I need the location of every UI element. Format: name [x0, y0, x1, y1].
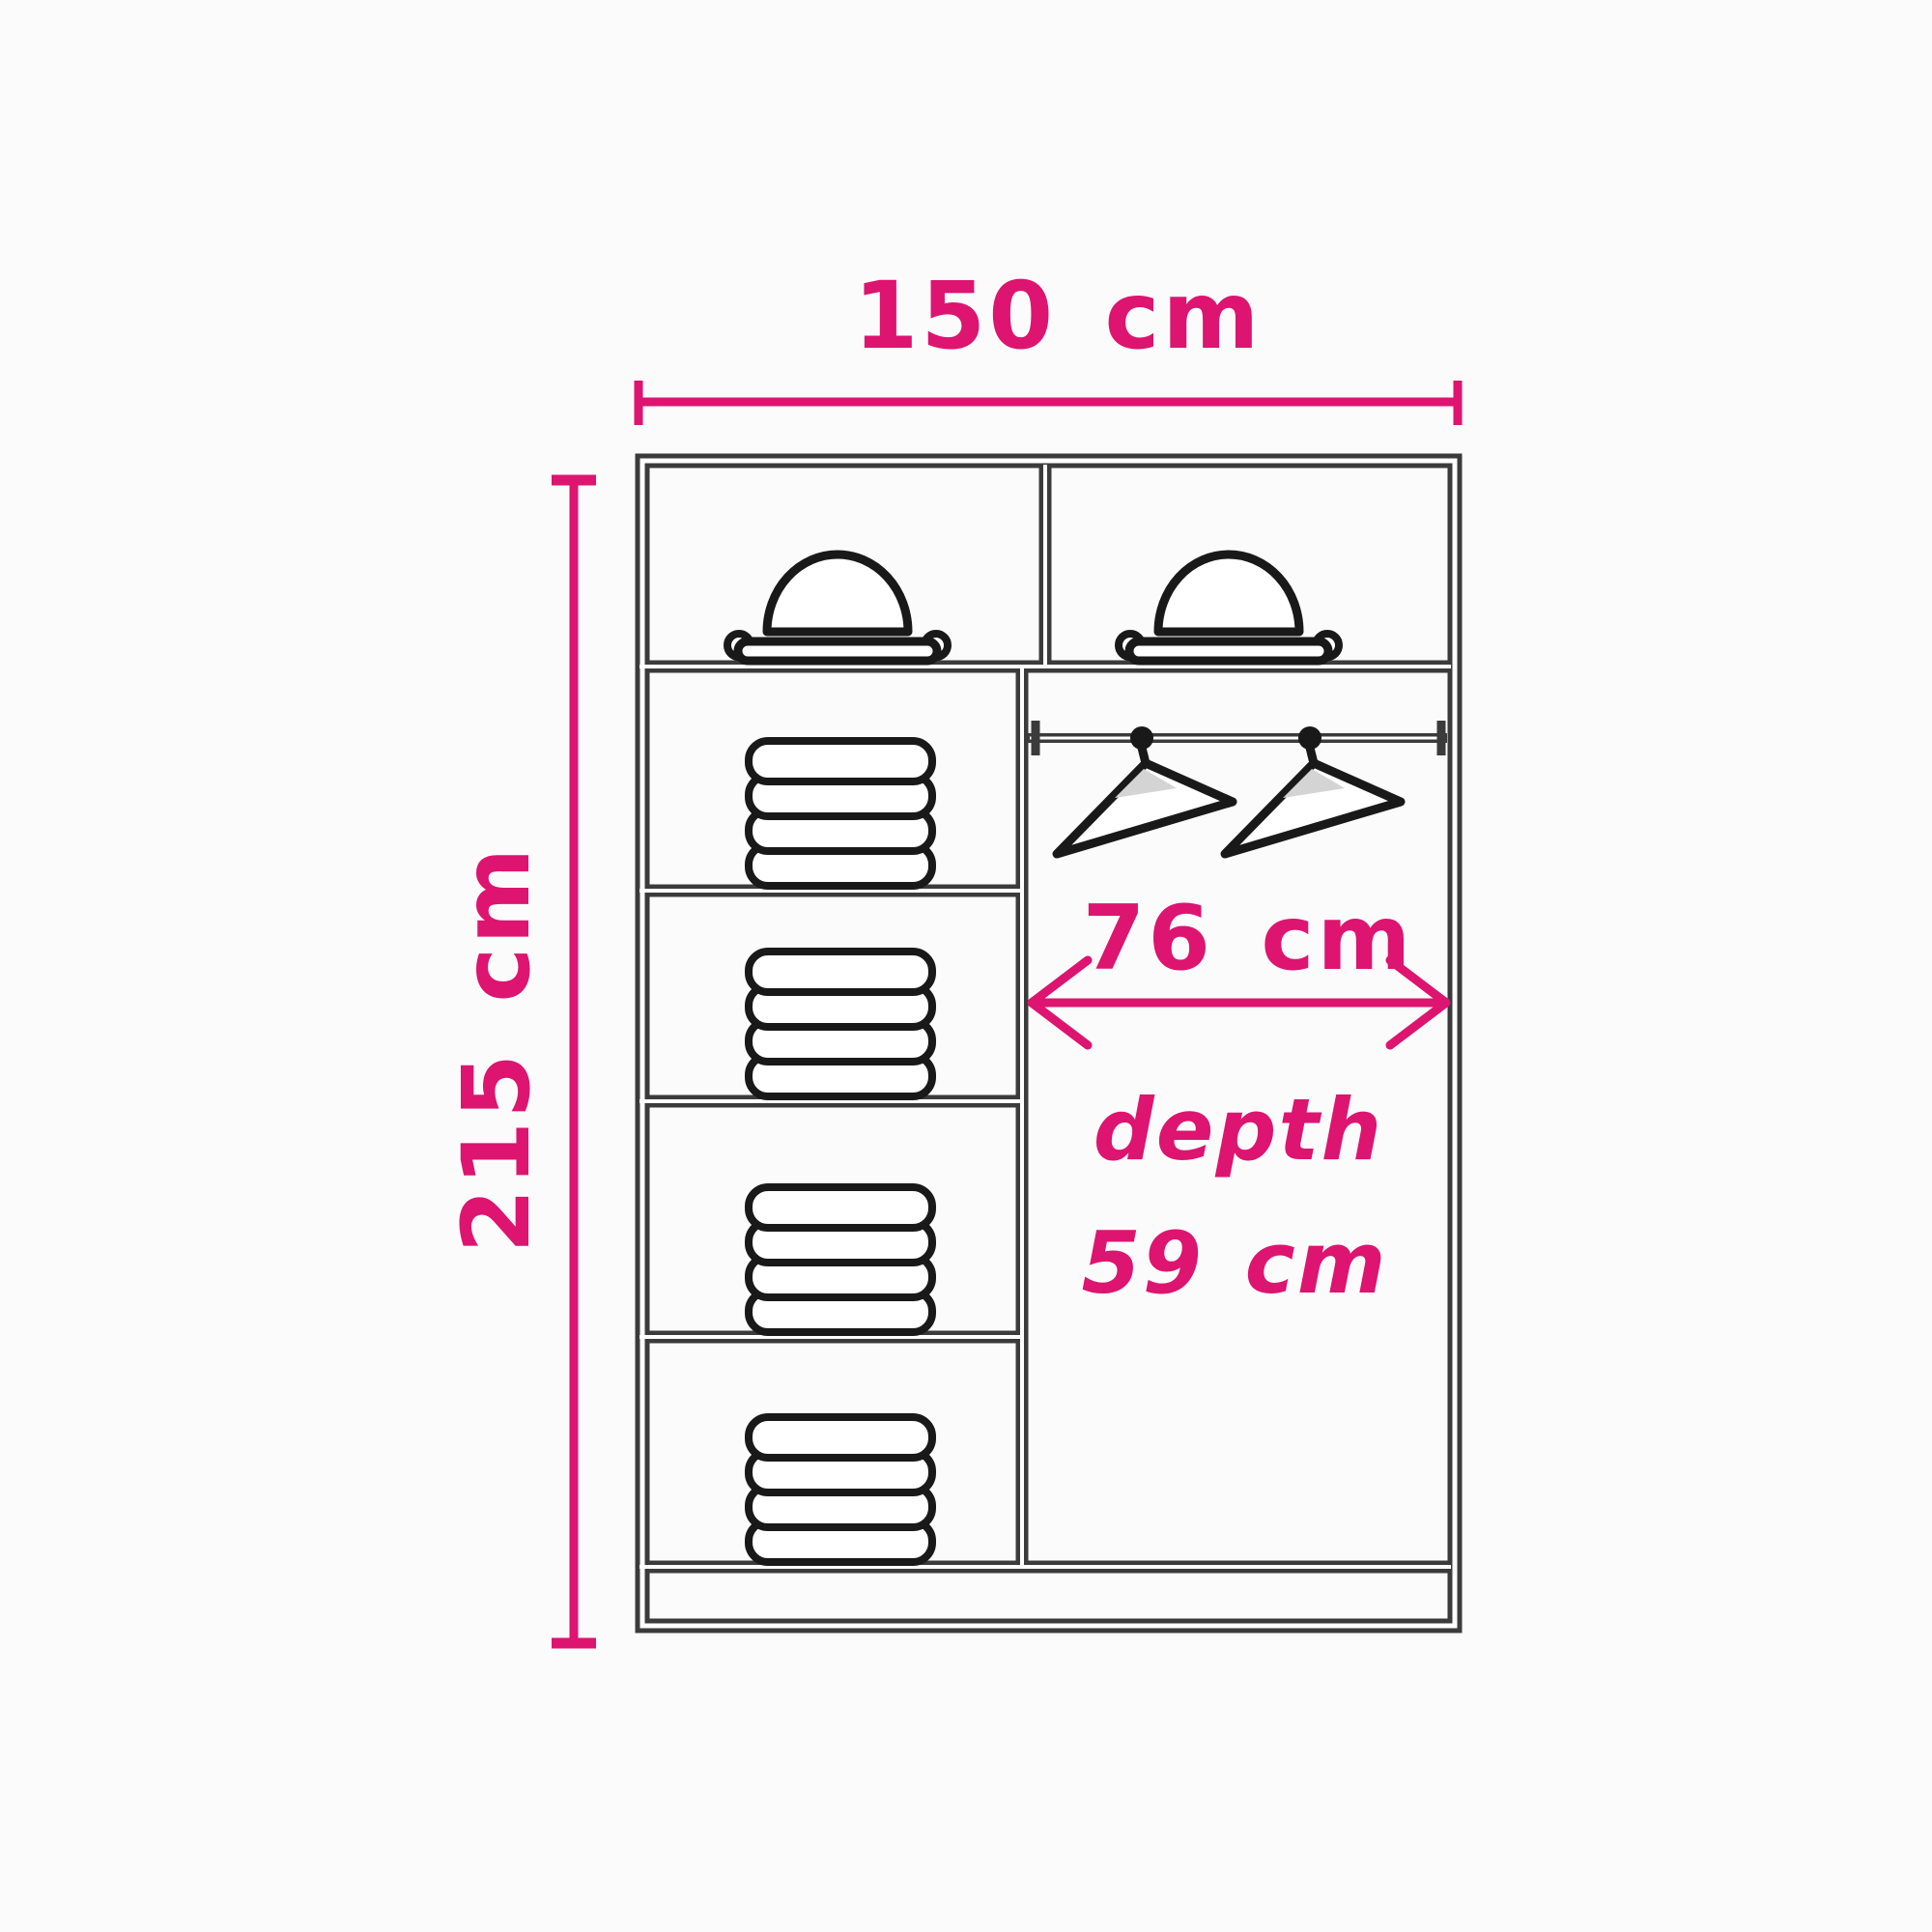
depth-value-label: 59 cm — [1082, 1213, 1388, 1313]
hat-icon — [727, 554, 948, 661]
diagram-drawing: 150 cm 215 cm 76 cm depth 59 cm — [0, 0, 1932, 1932]
hanger-rail — [1028, 721, 1447, 755]
width-dimension: 150 cm — [639, 262, 1458, 425]
hat-icon — [1119, 554, 1339, 661]
depth-word-label: depth — [1094, 1080, 1383, 1179]
hanging-width-label: 76 cm — [1083, 886, 1414, 990]
depth-annotation: depth 59 cm — [1082, 1080, 1388, 1313]
folded-clothes-icon — [749, 1187, 932, 1332]
hanger-icon — [1225, 726, 1401, 854]
height-dimension-label: 215 cm — [442, 845, 551, 1254]
folded-clothes-icon — [749, 952, 932, 1096]
folded-clothes-icon — [749, 1417, 932, 1562]
height-dimension: 215 cm — [442, 480, 596, 1643]
wardrobe-dimension-diagram: 150 cm 215 cm 76 cm depth 59 cm — [0, 0, 1932, 1932]
hanger-icon — [1057, 726, 1233, 854]
hanging-width-dimension: 76 cm — [1032, 886, 1446, 1045]
folded-clothes-icon — [749, 741, 932, 886]
width-dimension-label: 150 cm — [854, 262, 1263, 370]
